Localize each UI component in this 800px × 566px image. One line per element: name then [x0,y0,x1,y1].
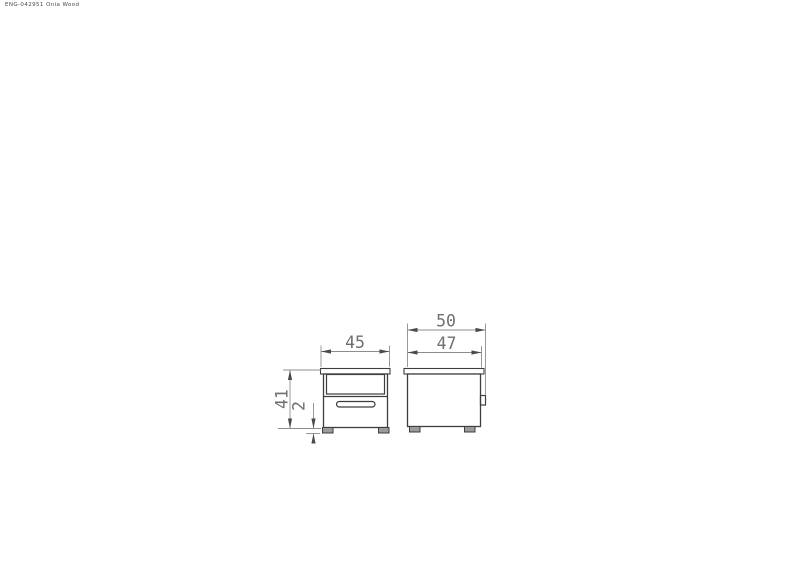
side-carcass-depth-dimension-label: 47 [437,334,457,353]
front-foot-left [323,428,334,434]
drawing-page: ENG-042951 Onia Wood [0,0,800,566]
side-carcass-depth-dimension: 47 [408,334,482,368]
front-foot-right [379,428,390,434]
front-carcass [324,374,388,428]
front-width-dimension: 45 [321,333,390,367]
side-overall-depth-dimension-label: 50 [436,312,456,331]
front-view [321,369,391,434]
front-top-panel [321,369,391,375]
side-foot-right [465,427,476,433]
side-foot-left [410,427,421,433]
front-width-dimension-label: 45 [345,333,365,352]
technical-drawing: 45 41 2 [0,0,800,566]
front-foot-height-dimension-label: 2 [290,401,309,411]
front-foot-height-dimension: 2 [290,401,321,441]
side-handle [481,396,486,406]
side-carcass [408,374,481,427]
side-view [404,369,486,433]
side-top-panel [404,369,484,375]
